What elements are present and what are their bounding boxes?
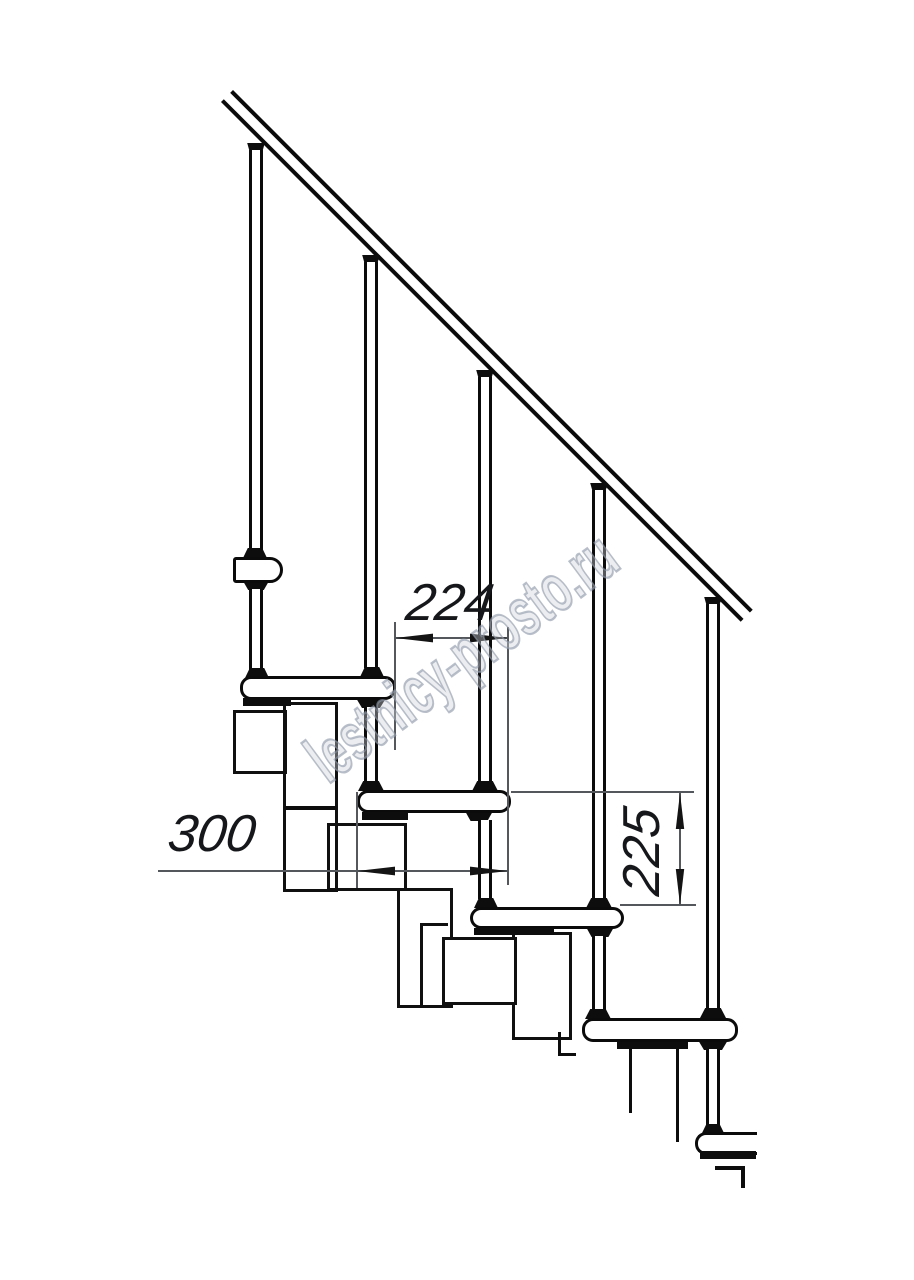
module-tube-e-line-1 [629,1047,632,1113]
dim-225-arrow-down [675,869,685,905]
baluster-5-collar [700,1008,726,1018]
tread-3-clamp [474,928,554,935]
break-line-vertical [741,1166,745,1188]
module-box-d [442,937,517,1005]
dim-300-label: 300 [162,808,261,860]
module-plate-b [233,710,287,774]
tread-3 [470,907,624,929]
tread-top-end-view [233,557,283,583]
module-box-c [327,823,407,891]
dim-225-arrow-up [675,793,685,829]
watermark-text: lestnicy-prosto.ru [291,516,633,797]
dim-300-extension [356,792,358,888]
module-tube-d [512,932,572,1040]
baluster-5-upper [706,604,720,1009]
break-line-horizontal [715,1166,743,1170]
baluster-3-lower [478,820,492,899]
tread-5-clamp [700,1151,756,1159]
baluster-5-lower [706,1049,720,1126]
dim-225-label: 225 [616,792,666,909]
tread-4-clamp [617,1042,688,1049]
baluster-2-upper [364,262,378,668]
baluster-1-upper [249,150,263,557]
staircase-technical-drawing: 224 300 225 lestnicy-prosto.ru [0,0,914,1280]
module-box-e-edge-bottom [558,1053,576,1056]
module-tube-e-line-2 [676,1047,679,1142]
baluster-1-lower [249,589,263,670]
tread-2-clamp [362,812,408,820]
dim-225-extension-top [511,791,694,793]
tread-2 [357,790,511,813]
dim-300-line [158,870,508,872]
baluster-4-lower [592,936,606,1011]
tread-1-clamp [243,698,291,706]
tread-4 [582,1018,738,1042]
module-tube-b-joint [285,806,336,810]
